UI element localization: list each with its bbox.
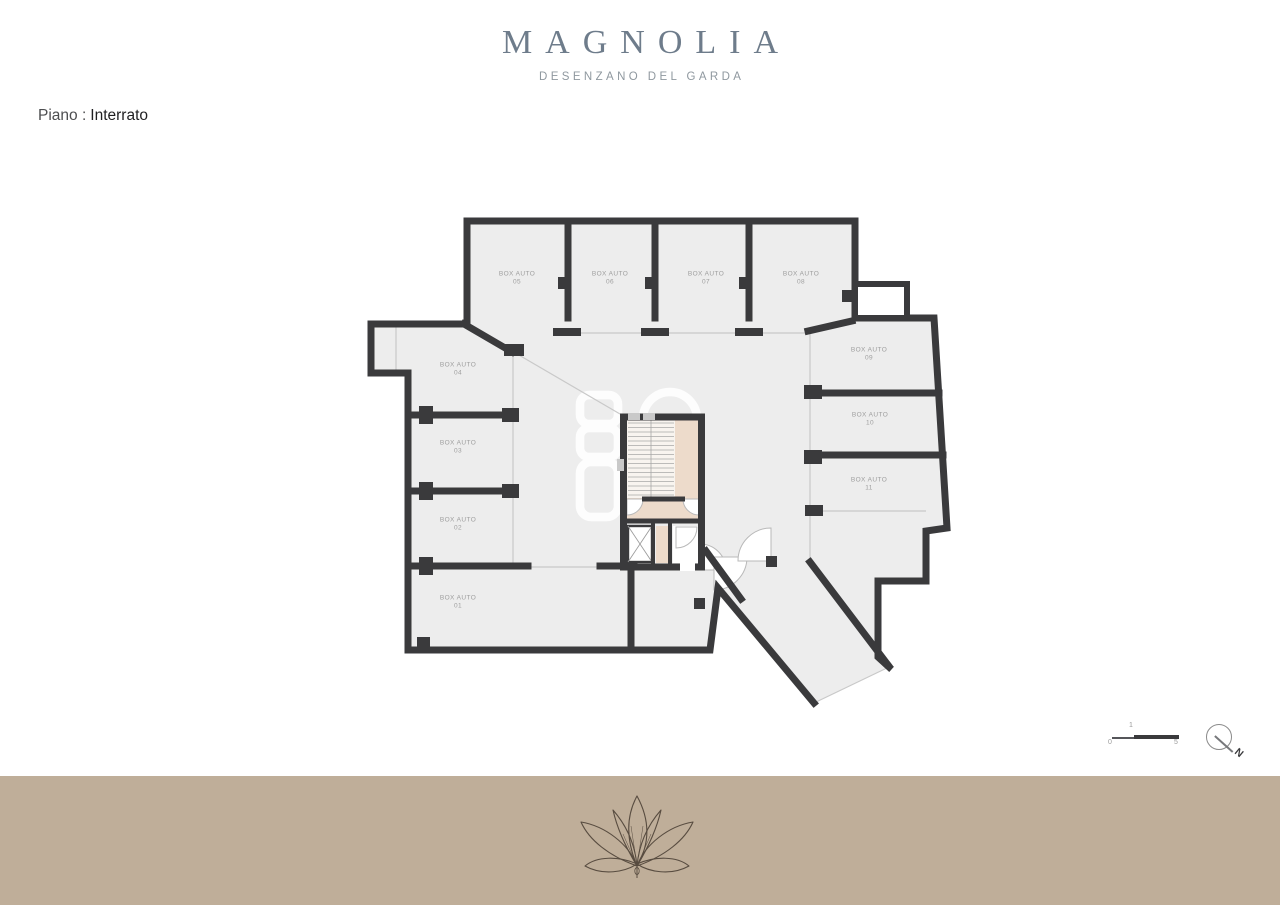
core-door-opening [680,562,695,571]
core-landing-beige [675,420,702,498]
floorplan: BOX AUTO01 BOX AUTO02 BOX AUTO03 BOX AUT… [0,0,1280,905]
unit-label-box-06: BOX AUTO06 [592,271,628,288]
scale-bar: 1 0 5 [1108,722,1184,750]
scale-bar-thick-segment [1134,735,1179,739]
unit-label-box-07: BOX AUTO07 [688,271,724,288]
scale-end-label: 5 [1174,739,1178,746]
unit-label-box-02: BOX AUTO02 [440,517,476,534]
elevator-shaft [628,526,652,562]
unit-label-box-11: BOX AUTO11 [851,477,887,494]
scale-bar-thin-segment [1112,737,1134,739]
unit-label-box-05: BOX AUTO05 [499,271,535,288]
core-lower-beige [656,526,669,563]
unit-label-box-03: BOX AUTO03 [440,440,476,457]
north-compass: N [1206,722,1256,764]
unit-label-box-10: BOX AUTO10 [852,412,888,429]
compass-north-label: N [1232,746,1246,760]
unit-label-box-09: BOX AUTO09 [851,347,887,364]
scale-start-label: 0 [1108,739,1112,746]
unit-label-box-04: BOX AUTO04 [440,362,476,379]
brochure-page: MAGNOLIA DESENZANO DEL GARDA Piano :Inte… [0,0,1280,905]
exterior-bay [855,284,907,318]
footer-band [0,776,1280,905]
floorplan-drawing [0,0,1280,905]
lotus-flower-icon [567,786,707,881]
scale-mid-label: 1 [1129,722,1133,729]
unit-label-box-08: BOX AUTO08 [783,271,819,288]
unit-label-box-01: BOX AUTO01 [440,595,476,612]
